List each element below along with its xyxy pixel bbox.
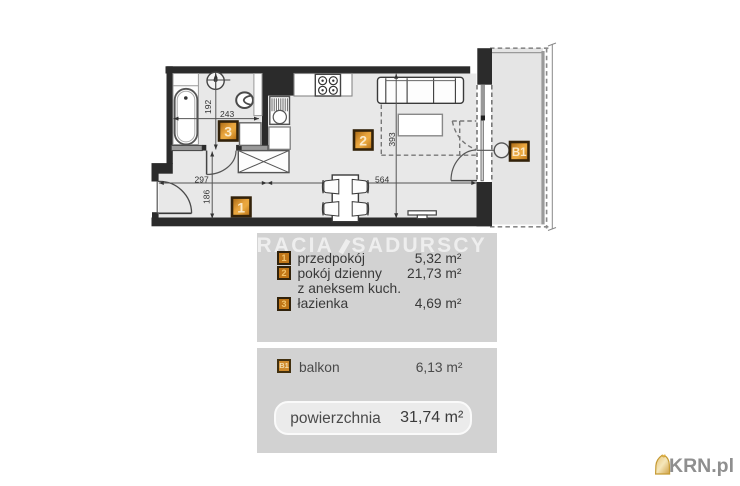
svg-text:393: 393 bbox=[387, 132, 397, 146]
svg-text:297: 297 bbox=[195, 174, 209, 184]
svg-text:1: 1 bbox=[237, 199, 245, 215]
svg-text:3: 3 bbox=[224, 124, 232, 140]
svg-text:186: 186 bbox=[201, 190, 211, 204]
svg-text:2: 2 bbox=[359, 133, 367, 149]
svg-text:192: 192 bbox=[203, 100, 213, 114]
svg-text:564: 564 bbox=[375, 174, 389, 184]
svg-text:B1: B1 bbox=[512, 147, 527, 159]
svg-text:243: 243 bbox=[220, 109, 234, 119]
